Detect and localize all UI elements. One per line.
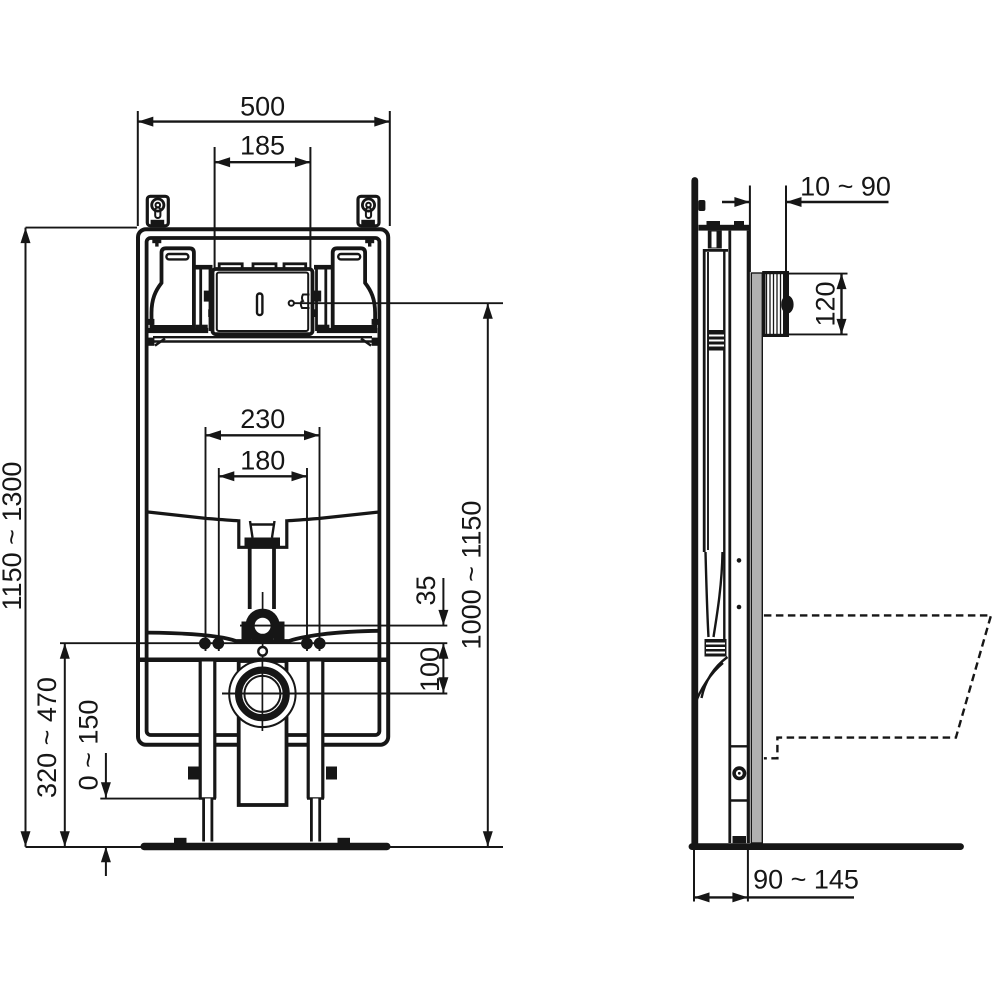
svg-text:90 ~ 145: 90 ~ 145 <box>753 864 859 894</box>
svg-text:120: 120 <box>811 281 841 326</box>
svg-text:0 ~ 150: 0 ~ 150 <box>74 700 104 791</box>
svg-text:35: 35 <box>411 575 441 605</box>
svg-text:1150 ~ 1300: 1150 ~ 1300 <box>0 462 27 611</box>
svg-text:500: 500 <box>240 91 285 121</box>
svg-text:10 ~ 90: 10 ~ 90 <box>800 172 891 202</box>
svg-text:1000 ~ 1150: 1000 ~ 1150 <box>457 501 487 650</box>
svg-text:230: 230 <box>240 404 285 434</box>
svg-text:185: 185 <box>240 131 285 161</box>
svg-text:320 ~ 470: 320 ~ 470 <box>32 677 62 798</box>
svg-text:100: 100 <box>415 647 445 692</box>
svg-text:180: 180 <box>240 446 285 476</box>
